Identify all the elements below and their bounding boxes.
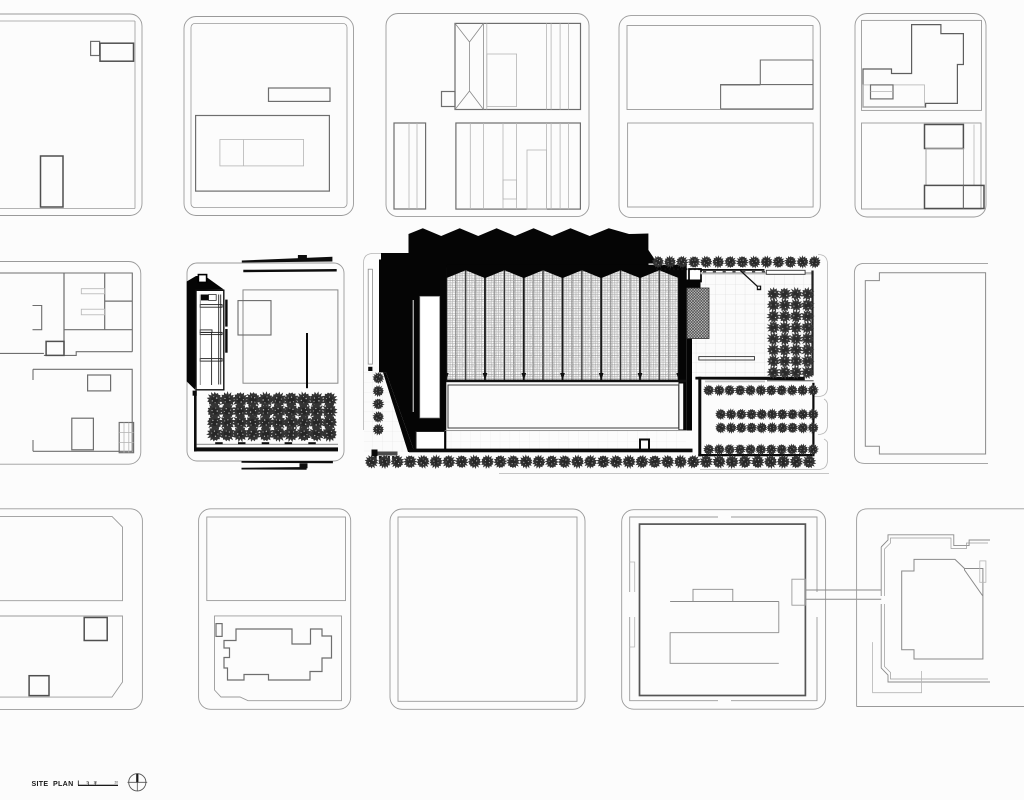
- svg-text:20: 20: [115, 781, 119, 785]
- svg-text:5: 5: [87, 781, 89, 785]
- svg-text:PLAN: PLAN: [53, 780, 74, 788]
- svg-text:SITE: SITE: [32, 780, 49, 788]
